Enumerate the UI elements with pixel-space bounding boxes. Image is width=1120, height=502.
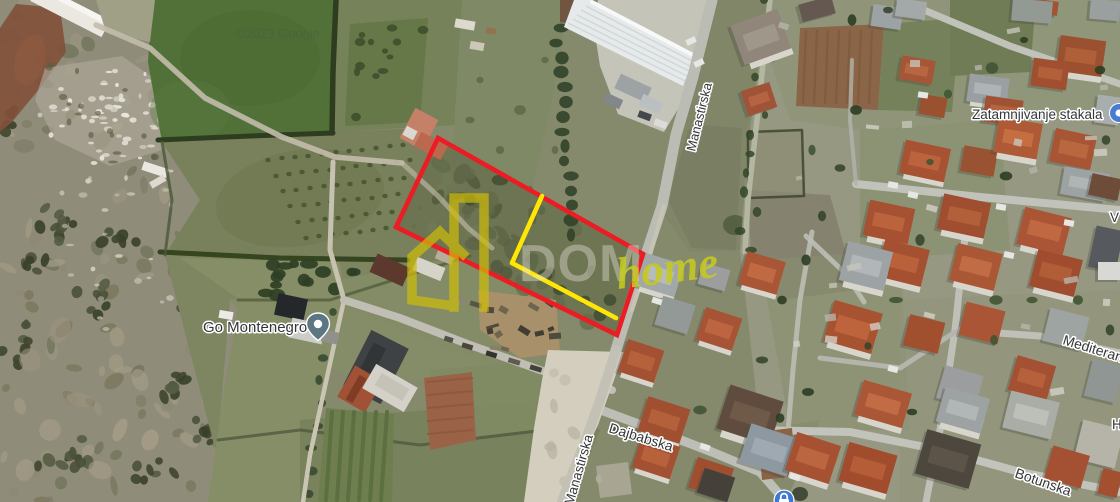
svg-text:V: V bbox=[1110, 210, 1119, 225]
svg-text:Go Montenegro: Go Montenegro bbox=[203, 319, 307, 336]
svg-text:©2023 Google: ©2023 Google bbox=[236, 26, 320, 41]
svg-text:H: H bbox=[1112, 417, 1120, 432]
svg-text:Zatamnjivanje stakala: Zatamnjivanje stakala bbox=[972, 107, 1103, 122]
